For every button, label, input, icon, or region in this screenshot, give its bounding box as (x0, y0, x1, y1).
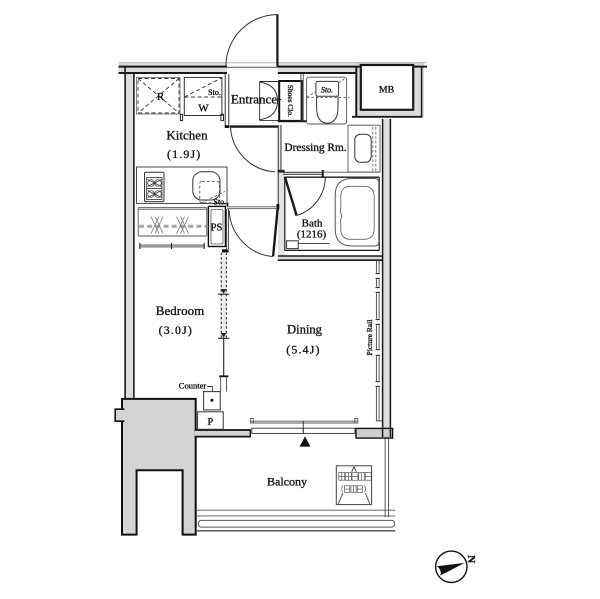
svg-text:(1216): (1216) (297, 228, 327, 240)
svg-text:Sto.: Sto. (208, 88, 221, 97)
svg-text:W: W (198, 103, 209, 115)
svg-text:R: R (157, 91, 165, 103)
svg-text:P: P (208, 417, 214, 428)
svg-text:Bedroom: Bedroom (156, 303, 204, 318)
svg-text:Sto.: Sto. (213, 198, 226, 207)
svg-text:Counter: Counter (179, 381, 207, 391)
svg-text:Picture Rail: Picture Rail (365, 320, 374, 356)
svg-text:(3.0J): (3.0J) (159, 323, 193, 337)
svg-text:(1.9J): (1.9J) (167, 147, 201, 161)
svg-text:Dressing Rm.: Dressing Rm. (284, 142, 346, 154)
svg-text:Entrance: Entrance (231, 92, 277, 107)
svg-text:N: N (465, 555, 477, 563)
svg-text:PS: PS (211, 223, 223, 234)
svg-text:MB: MB (379, 85, 395, 96)
svg-text:Kitchen: Kitchen (166, 128, 208, 143)
svg-text:(5.4J): (5.4J) (286, 342, 320, 356)
svg-text:Sto.: Sto. (321, 85, 333, 94)
svg-text:Balcony: Balcony (267, 475, 307, 489)
svg-text:Dining: Dining (287, 322, 323, 336)
svg-text:Shoes Clo.: Shoes Clo. (286, 85, 295, 117)
